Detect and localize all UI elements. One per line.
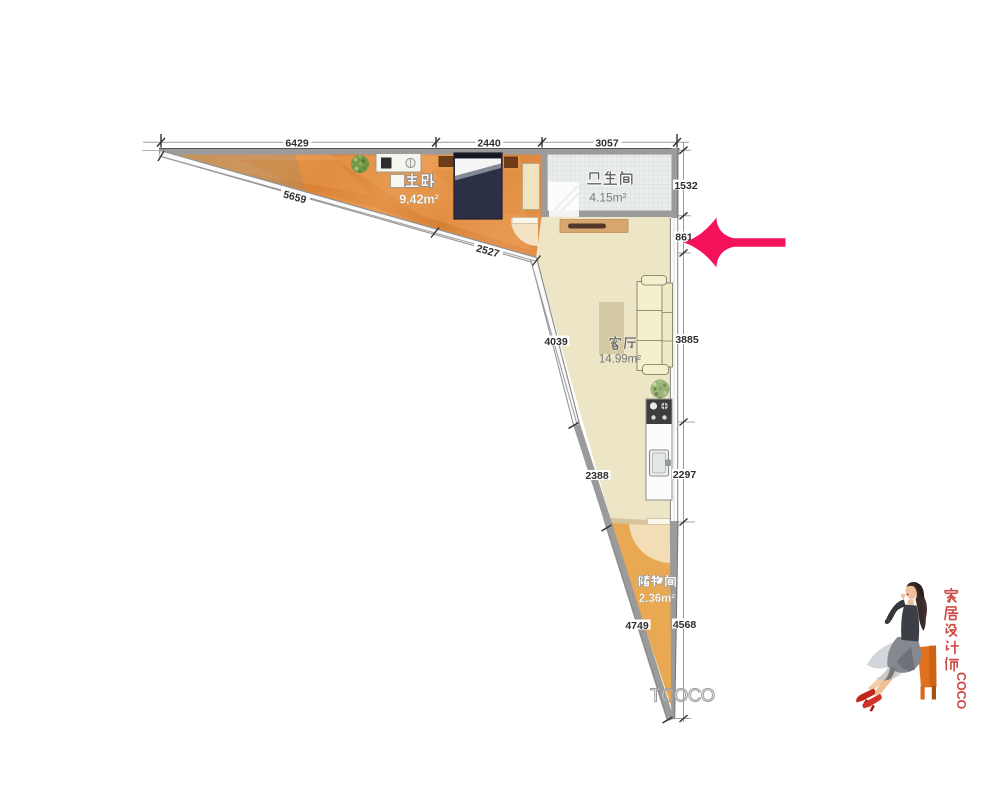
svg-text:C: C: [954, 691, 968, 700]
svg-text:O: O: [954, 681, 968, 691]
svg-text:C: C: [954, 672, 968, 681]
svg-text:4.15m²: 4.15m²: [589, 191, 626, 205]
svg-text:2.36m²: 2.36m²: [639, 593, 676, 605]
svg-text:O: O: [954, 700, 968, 710]
svg-text:6429: 6429: [285, 138, 309, 150]
svg-text:TCOCO: TCOCO: [650, 685, 715, 706]
svg-text:2297: 2297: [673, 469, 697, 481]
svg-text:4749: 4749: [625, 620, 649, 632]
svg-text:4039: 4039: [544, 336, 568, 348]
svg-text:3057: 3057: [595, 138, 619, 150]
svg-text:9.42m²: 9.42m²: [399, 193, 439, 207]
svg-text:4568: 4568: [673, 619, 697, 631]
svg-text:2440: 2440: [477, 138, 501, 150]
svg-text:3885: 3885: [675, 334, 699, 346]
svg-text:1532: 1532: [674, 180, 698, 192]
svg-text:14.99m²: 14.99m²: [599, 354, 641, 366]
svg-text:2388: 2388: [585, 470, 609, 482]
